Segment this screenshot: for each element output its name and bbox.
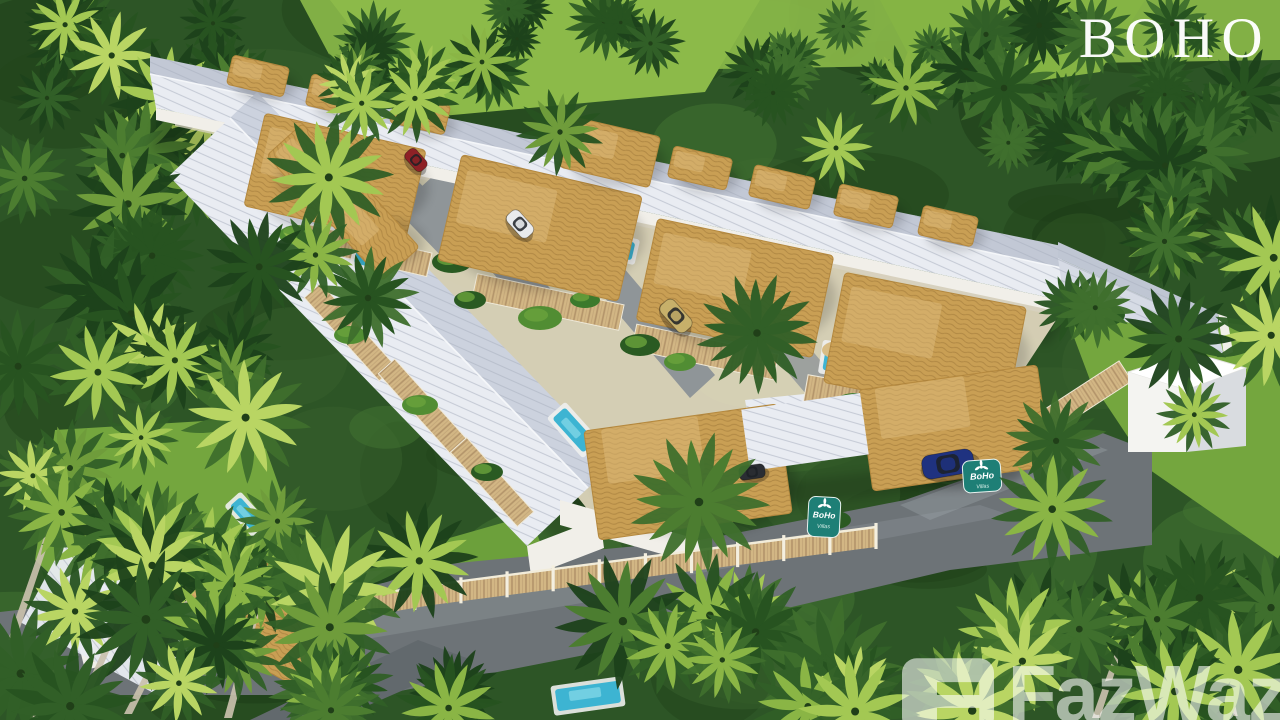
boho-logo: BOHO bbox=[1079, 10, 1270, 67]
sign-text-line2: Villas bbox=[817, 524, 831, 531]
sign-text-line2: Villas bbox=[976, 484, 990, 491]
aerial-render: BoHo Villas BoHo Villas BOHO FazWaz bbox=[0, 0, 1280, 720]
fazwaz-watermark: FazWaz bbox=[902, 656, 1280, 720]
sign-text-line1: BoHo bbox=[970, 470, 995, 482]
scene-canvas: BoHo Villas BoHo Villas bbox=[0, 0, 1280, 720]
entrance-sign-left: BoHo Villas bbox=[807, 496, 841, 538]
fazwaz-wordmark: FazWaz bbox=[1008, 656, 1280, 720]
entrance-sign-right: BoHo Villas bbox=[962, 459, 1002, 494]
sign-text-line1: BoHo bbox=[813, 509, 836, 520]
fazwaz-f-icon bbox=[902, 658, 994, 720]
